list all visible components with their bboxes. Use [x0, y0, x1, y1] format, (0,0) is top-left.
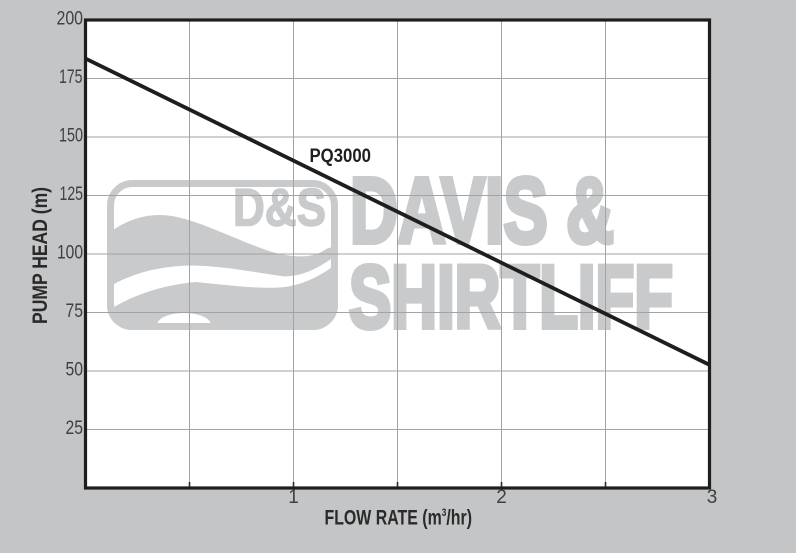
svg-text:1: 1 [288, 487, 299, 508]
svg-text:100: 100 [57, 242, 83, 263]
svg-text:D&S: D&S [233, 179, 326, 238]
svg-text:75: 75 [66, 301, 84, 322]
svg-text:150: 150 [59, 125, 83, 146]
svg-text:175: 175 [59, 67, 83, 88]
svg-text:200: 200 [57, 8, 84, 29]
svg-text:3: 3 [707, 487, 718, 508]
svg-text:PUMP HEAD (m): PUMP HEAD (m) [29, 187, 52, 324]
svg-text:PQ3000: PQ3000 [310, 146, 372, 167]
svg-text:50: 50 [66, 359, 84, 380]
svg-text:25: 25 [66, 418, 84, 439]
svg-text:2: 2 [496, 487, 507, 508]
svg-text:FLOW RATE (m3/hr): FLOW RATE (m3/hr) [325, 507, 473, 530]
svg-text:125: 125 [60, 184, 84, 205]
